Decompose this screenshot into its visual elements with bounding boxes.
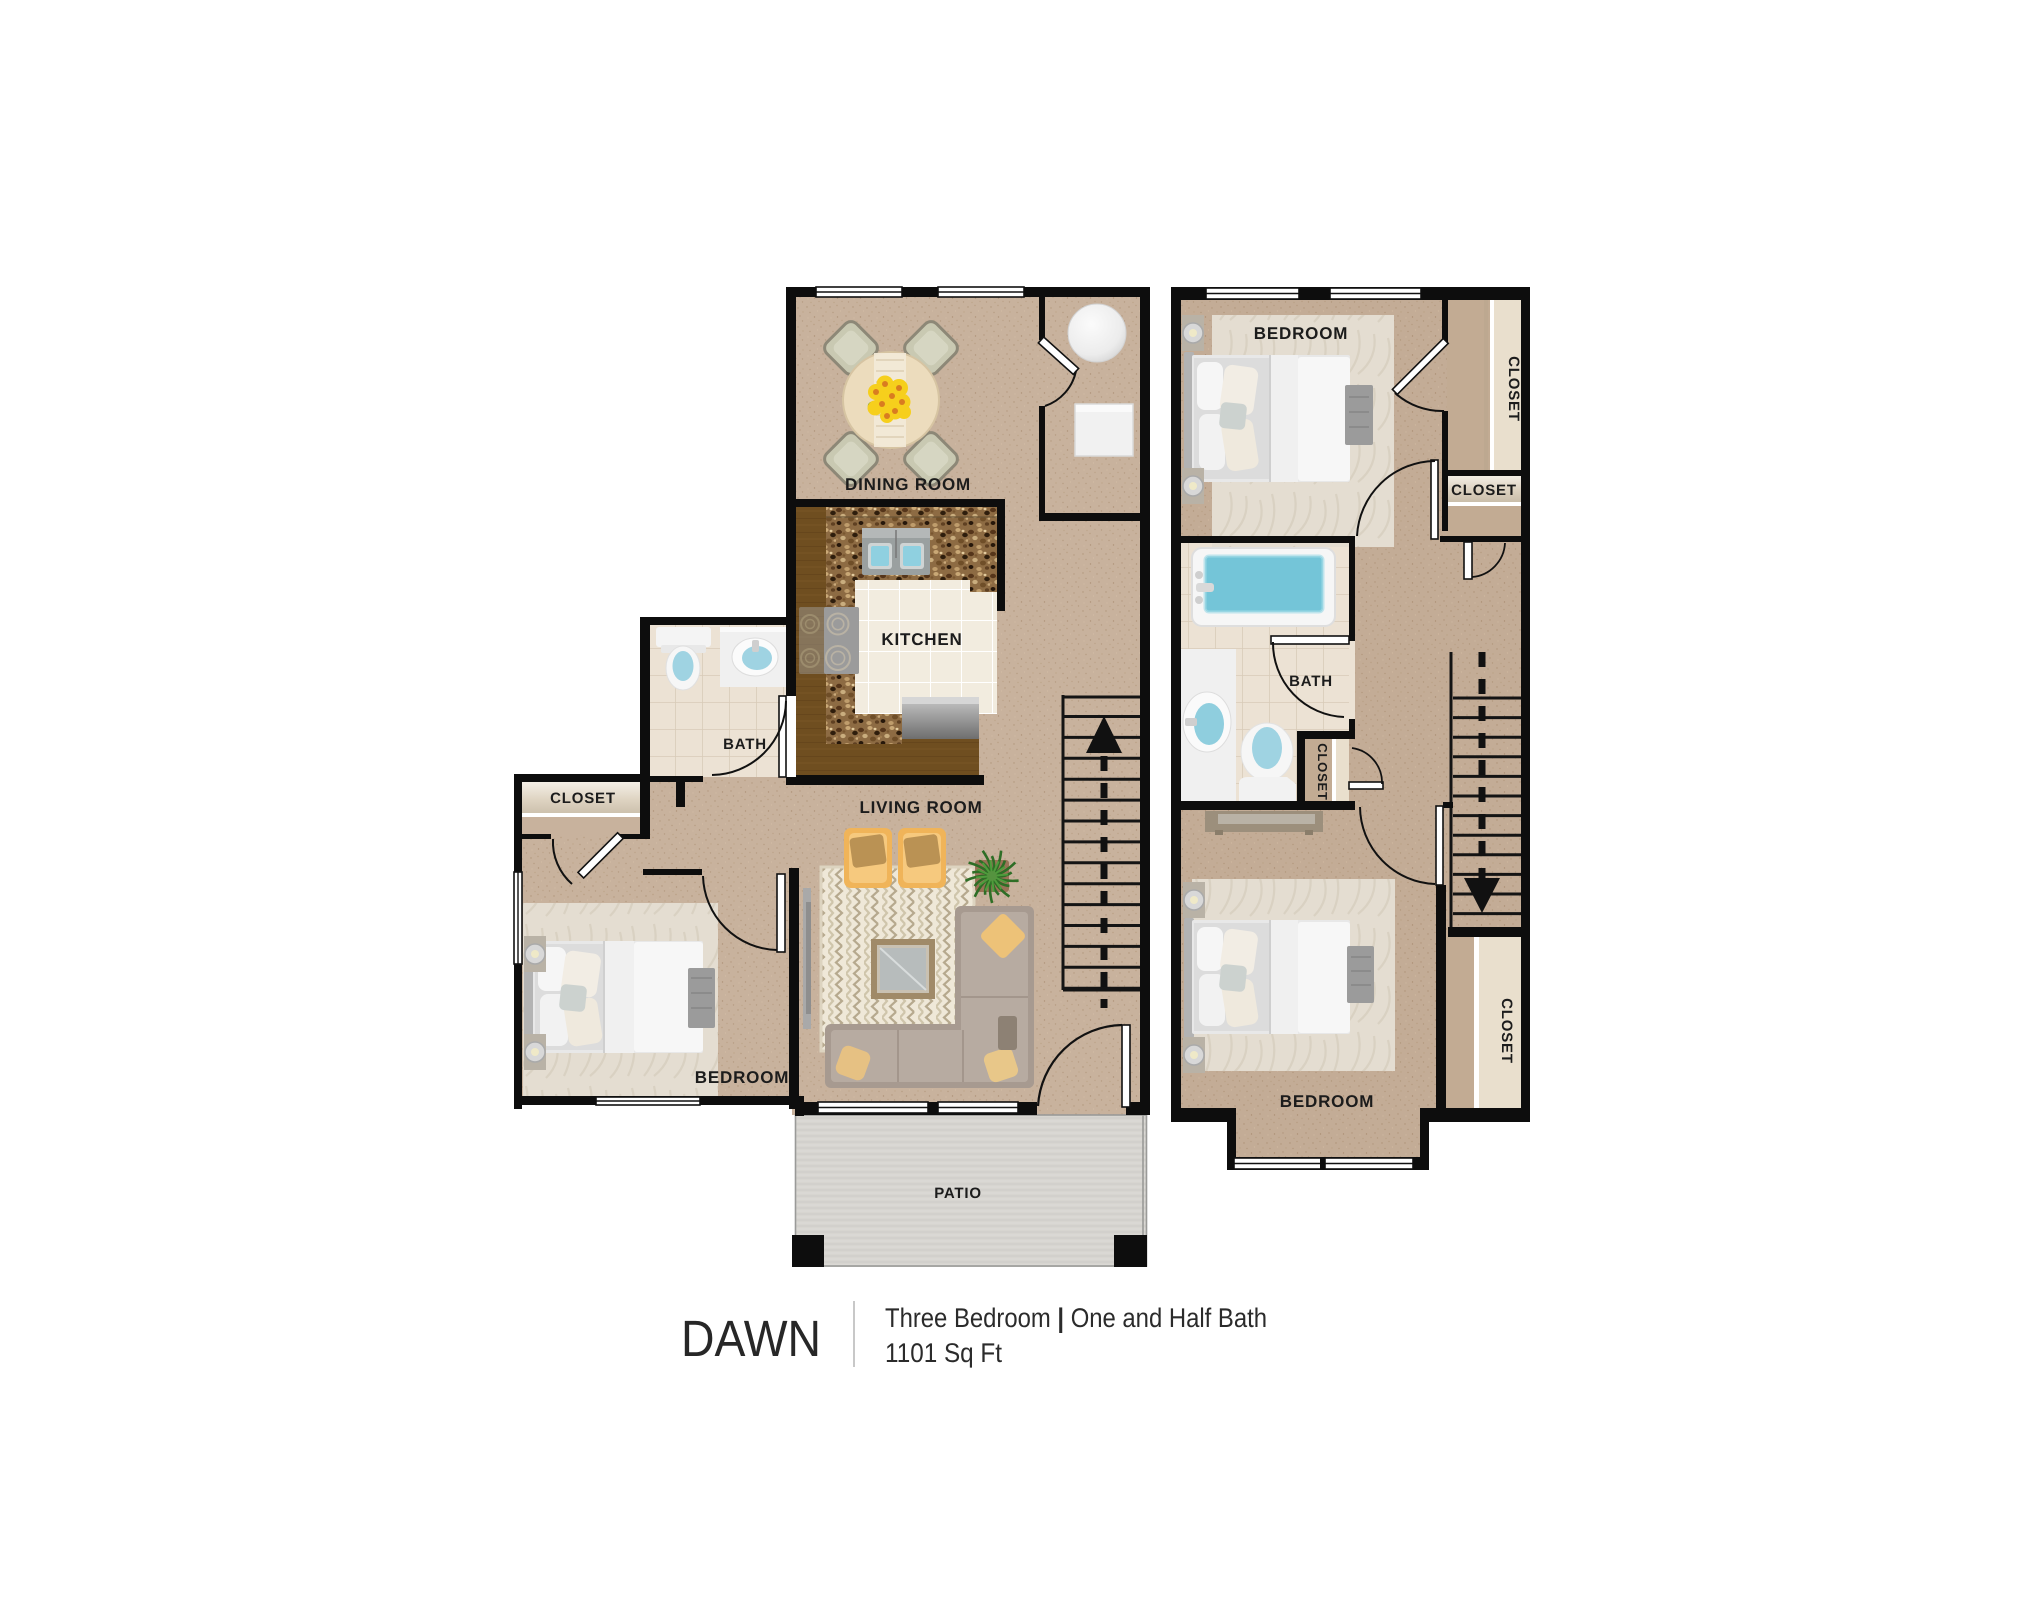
svg-text:BATH: BATH <box>1289 673 1333 690</box>
svg-text:LIVING ROOM: LIVING ROOM <box>859 798 982 817</box>
svg-text:CLOSET: CLOSET <box>1505 356 1522 422</box>
svg-text:CLOSET: CLOSET <box>1451 482 1517 499</box>
svg-text:Three Bedroom | One and Half B: Three Bedroom | One and Half Bath <box>885 1303 1267 1333</box>
svg-text:1101 Sq Ft: 1101 Sq Ft <box>885 1338 1002 1368</box>
svg-text:DINING ROOM: DINING ROOM <box>845 475 971 494</box>
svg-text:BEDROOM: BEDROOM <box>1254 324 1348 343</box>
svg-text:PATIO: PATIO <box>934 1185 982 1202</box>
svg-text:CLOSET: CLOSET <box>1315 743 1330 801</box>
svg-text:CLOSET: CLOSET <box>550 790 616 807</box>
svg-text:BEDROOM: BEDROOM <box>1280 1092 1374 1111</box>
svg-text:CLOSET: CLOSET <box>1498 998 1515 1064</box>
svg-text:DAWN: DAWN <box>681 1310 821 1367</box>
svg-text:BEDROOM: BEDROOM <box>695 1068 789 1087</box>
svg-text:KITCHEN: KITCHEN <box>881 630 962 649</box>
svg-text:BATH: BATH <box>723 736 767 753</box>
